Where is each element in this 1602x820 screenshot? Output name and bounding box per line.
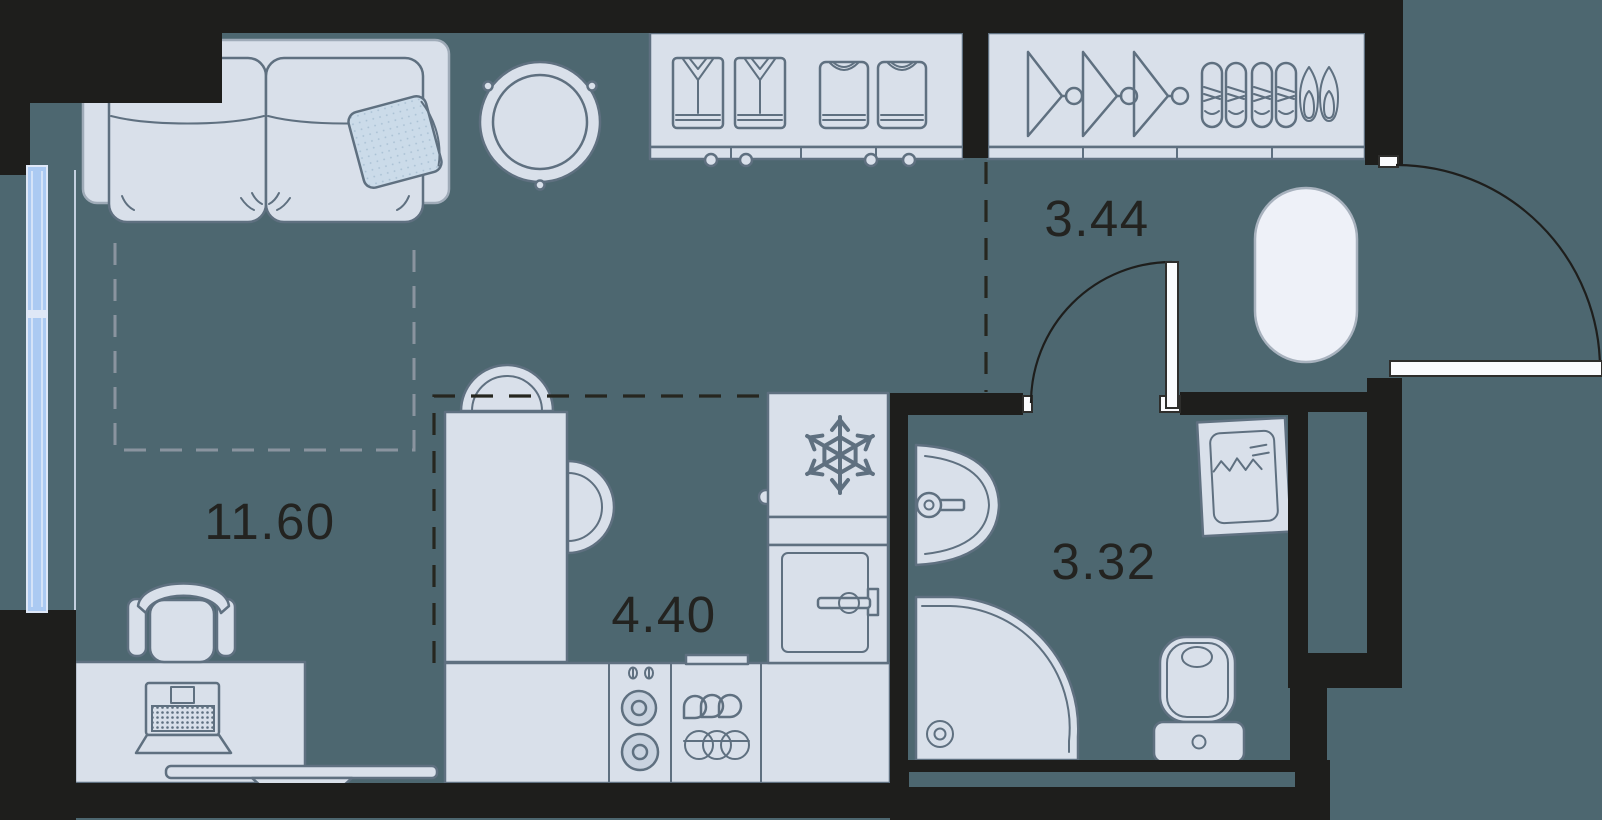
oven-handle [818, 598, 870, 608]
washing-machine [1197, 418, 1291, 536]
floor-plan-svg: 11.60 3.44 4.40 3.32 [0, 0, 1602, 820]
laptop-icon [136, 683, 231, 753]
tshirt-icon [820, 62, 868, 128]
faucet-icon [917, 493, 941, 517]
area-label-living: 11.60 [204, 493, 335, 550]
oven [768, 517, 888, 663]
tshirt-icon [878, 62, 926, 128]
area-label-bathroom: 3.32 [1051, 533, 1156, 590]
shirt-icon [735, 58, 785, 128]
floor-plan: 11.60 3.44 4.40 3.32 [0, 0, 1602, 820]
drawer-knob [865, 154, 877, 166]
entry-door-leaf [1390, 361, 1602, 376]
wall-niche [1308, 412, 1367, 653]
toilet-tank [1154, 722, 1244, 762]
fridge [759, 393, 888, 517]
kitchen-counter [445, 663, 890, 783]
shirt-icon [673, 58, 723, 128]
wardrobe [988, 33, 1365, 159]
toilet [1154, 637, 1244, 762]
drawer-knob [903, 154, 915, 166]
office-chair [128, 584, 235, 663]
drawer-knob [740, 154, 752, 166]
area-label-kitchen: 4.40 [611, 586, 716, 643]
dresser [650, 33, 963, 166]
entry-rug [1255, 188, 1357, 362]
area-label-hallway: 3.44 [1044, 190, 1149, 247]
wall-inset [909, 772, 1295, 787]
bathroom-door-leaf [1166, 262, 1178, 408]
drawer-knob [705, 154, 717, 166]
dining-table [445, 412, 567, 662]
door-jamb [1379, 156, 1398, 167]
